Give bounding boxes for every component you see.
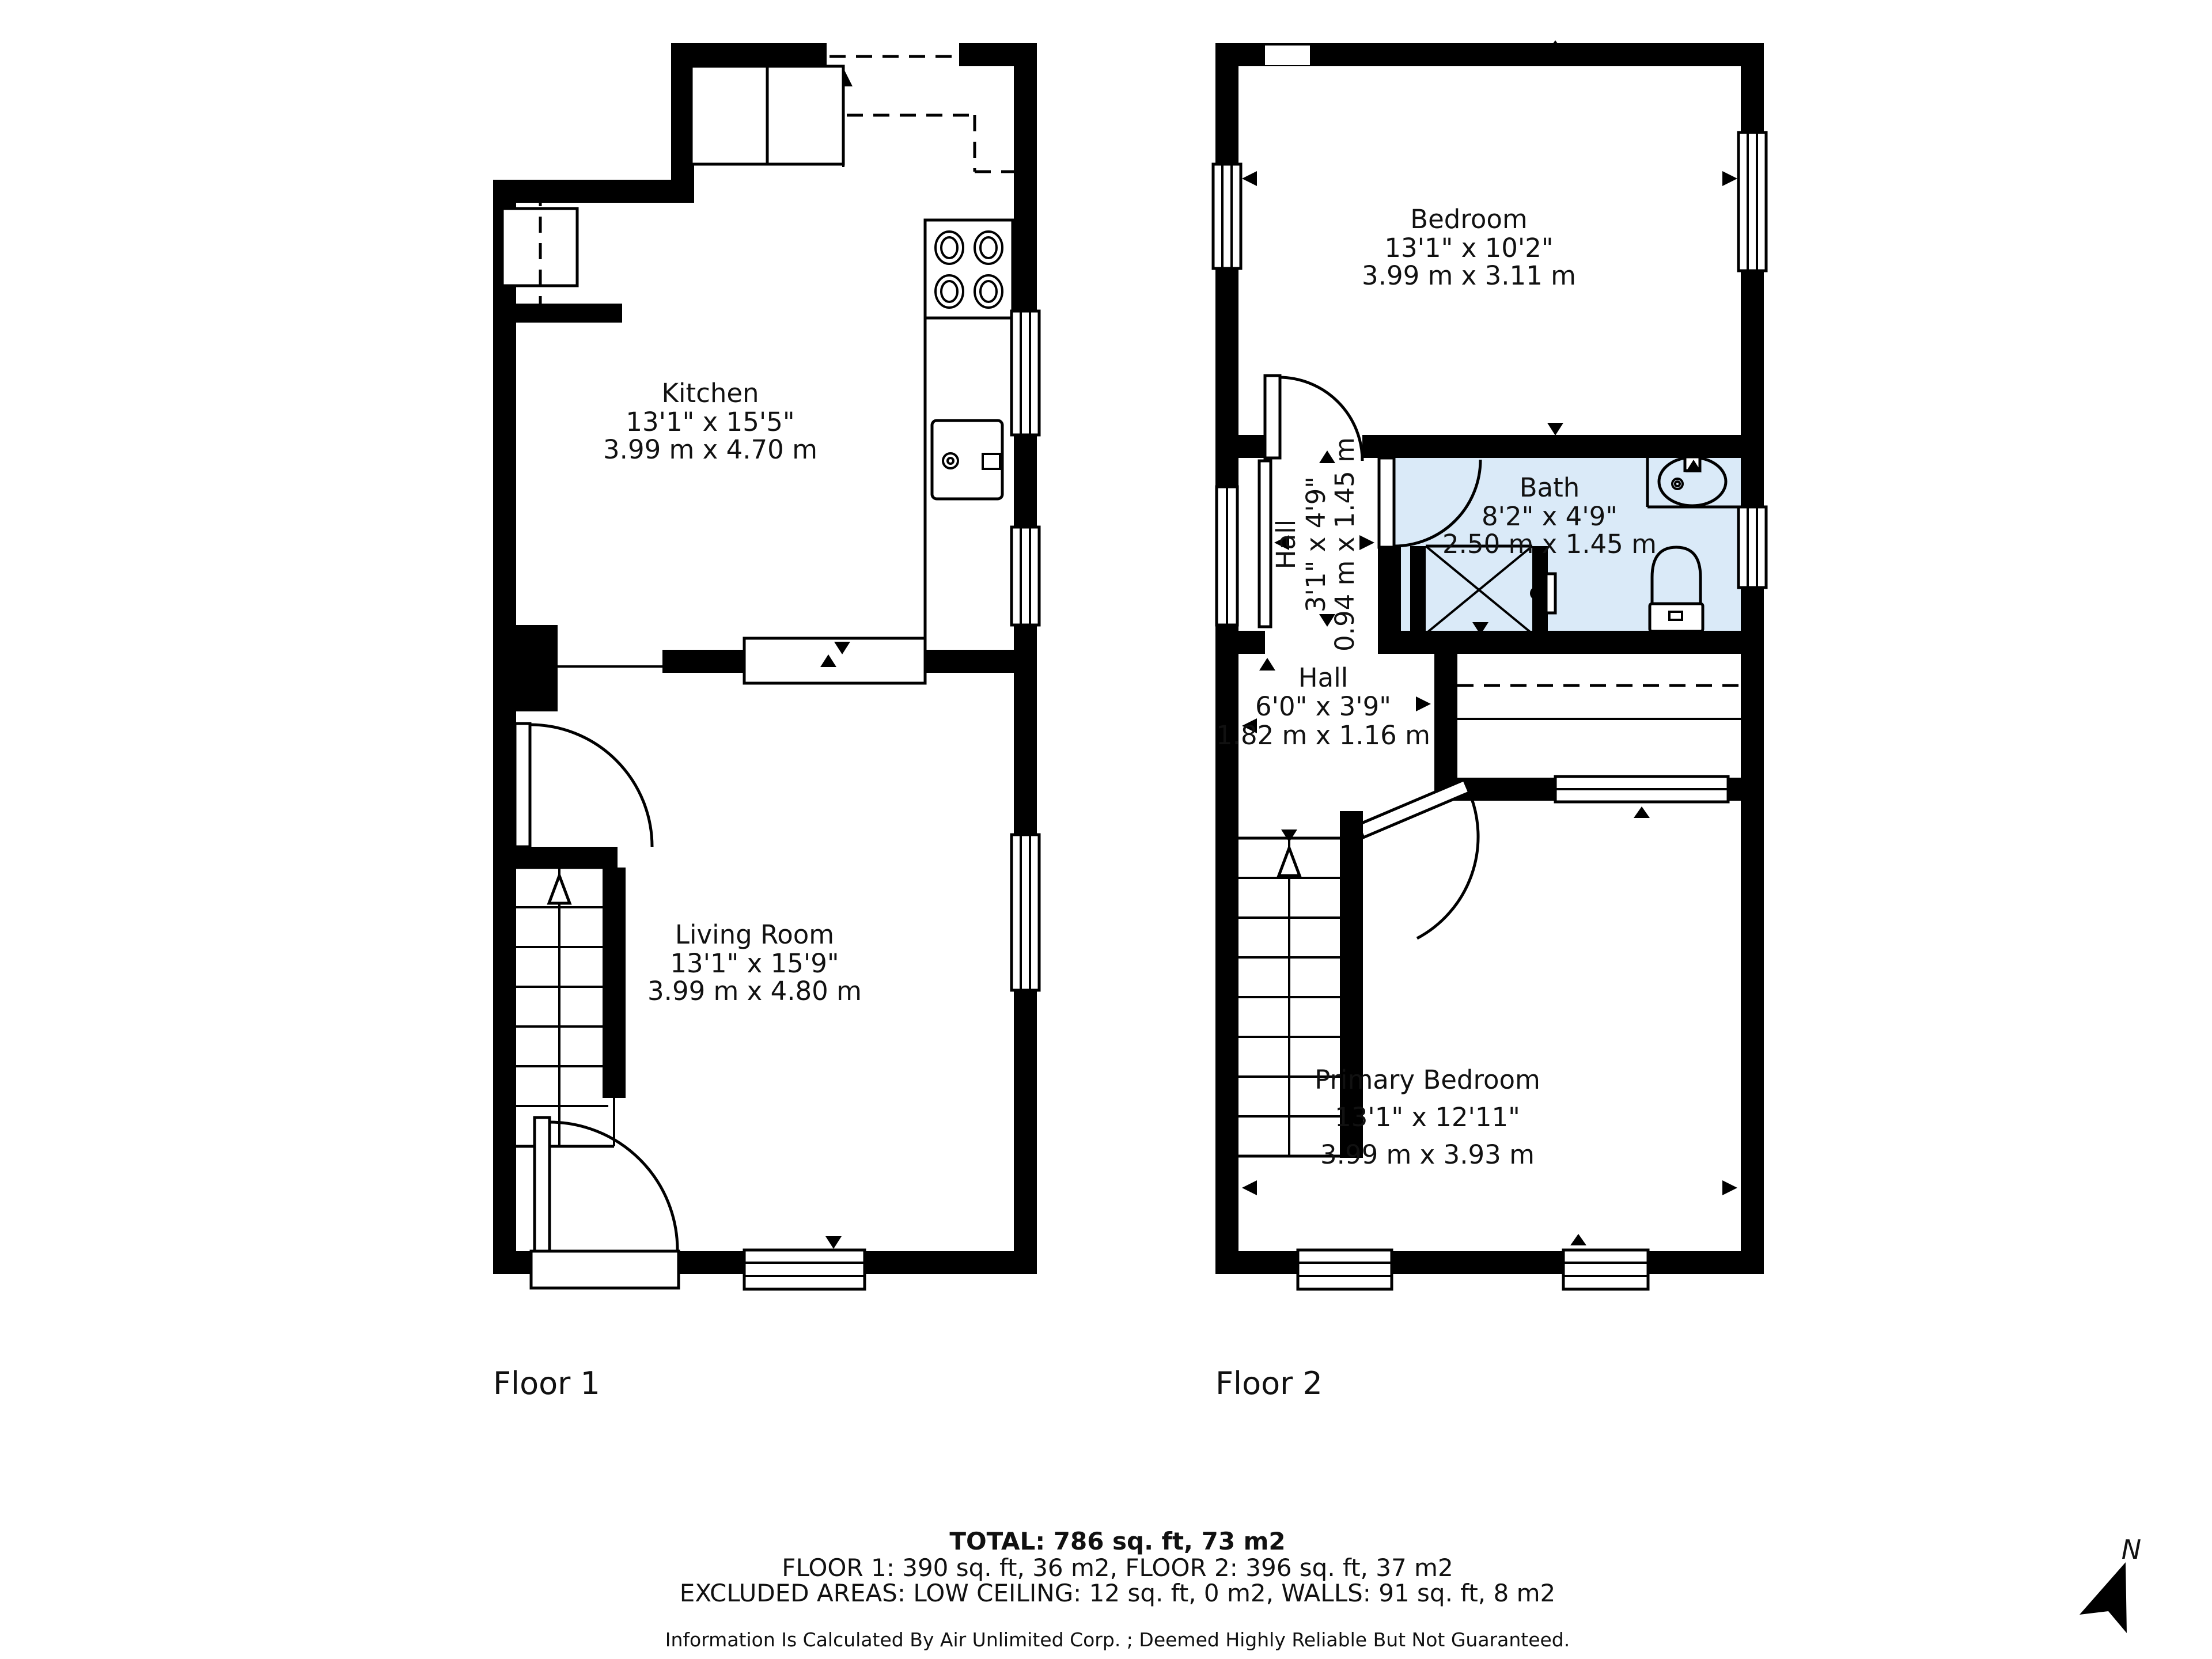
floor2-plan: Bedroom 13'1" x 10'2" 3.99 m x 3.11 m Ba… <box>1213 40 1766 1402</box>
floor1-plan: Kitchen 13'1" x 15'5" 3.99 m x 4.70 m Li… <box>493 43 1039 1402</box>
summary-excluded: EXCLUDED AREAS: LOW CEILING: 12 sq. ft, … <box>680 1579 1555 1607</box>
summary-total: TOTAL: 786 sq. ft, 73 m2 <box>949 1527 1285 1555</box>
kitchen-imperial: 13'1" x 15'5" <box>626 407 794 437</box>
summary-block: TOTAL: 786 sq. ft, 73 m2 FLOOR 1: 390 sq… <box>665 1527 1570 1651</box>
kitchen-window <box>1012 311 1039 435</box>
bath-window <box>1738 507 1766 588</box>
hall-name: Hall <box>1298 662 1348 693</box>
hall-small-label: Hall 3'1" x 4'9" 0.94 m x 1.45 m <box>1271 437 1360 652</box>
hall-recess <box>1217 461 1271 627</box>
living-room-label: Living Room 13'1" x 15'9" 3.99 m x 4.80 … <box>647 919 862 1006</box>
kitchen-metric: 3.99 m x 4.70 m <box>603 434 817 465</box>
bedroom-imperial: 13'1" x 10'2" <box>1384 233 1553 263</box>
living-room-door <box>515 724 652 847</box>
primary-bedroom-metric: 3.99 m x 3.93 m <box>1320 1139 1535 1170</box>
kitchen-counter <box>691 66 843 164</box>
kitchen-window-2 <box>1012 527 1039 625</box>
stair-wall-stub <box>493 847 618 868</box>
floor-plan-svg: Kitchen 13'1" x 15'5" 3.99 m x 4.70 m Li… <box>0 0 2212 1659</box>
stairs-icon <box>516 868 626 1146</box>
primary-bedroom-name: Primary Bedroom <box>1315 1065 1540 1095</box>
bedroom-name: Bedroom <box>1410 204 1528 234</box>
hall-bottom-stub <box>1215 631 1265 654</box>
primary-bottom-window-1 <box>1298 1250 1392 1289</box>
hall-small-name: Hall <box>1271 520 1301 569</box>
front-door <box>531 1118 679 1288</box>
living-room-imperial: 13'1" x 15'9" <box>670 948 839 979</box>
hall-imperial: 6'0" x 3'9" <box>1255 691 1391 722</box>
bath-name: Bath <box>1520 472 1580 503</box>
stove-icon <box>925 220 1013 318</box>
upper-cabinets-dashed <box>847 115 1014 172</box>
bedroom-left-window <box>1213 164 1241 268</box>
primary-bedroom-imperial: 13'1" x 12'11" <box>1335 1102 1520 1132</box>
hall-primary-door <box>1358 780 1478 938</box>
kitchen-living-divider <box>493 625 1014 711</box>
floorplan-page: Kitchen 13'1" x 15'5" 3.99 m x 4.70 m Li… <box>0 0 2212 1659</box>
hall-small-metric: 0.94 m x 1.45 m <box>1330 437 1360 652</box>
closet-area <box>1434 654 1741 818</box>
floor1-label: Floor 1 <box>493 1365 600 1402</box>
living-room-window <box>1012 835 1039 990</box>
north-label: N <box>2122 1534 2141 1565</box>
bath-metric: 2.50 m x 1.45 m <box>1442 529 1657 559</box>
pass-through-counter <box>744 638 925 683</box>
north-arrow-icon: N <box>2080 1534 2141 1633</box>
sink-icon <box>932 421 1002 499</box>
hall-label: Hall 6'0" x 3'9" 1.82 m x 1.16 m <box>1216 662 1430 751</box>
kitchen-name: Kitchen <box>661 378 759 408</box>
door-threshold <box>531 1251 679 1288</box>
primary-bedroom-label: Primary Bedroom 13'1" x 12'11" 3.99 m x … <box>1315 1065 1540 1170</box>
bath-imperial: 8'2" x 4'9" <box>1482 501 1618 532</box>
living-room-bottom-window <box>744 1250 865 1289</box>
hall-small-imperial: 3'1" x 4'9" <box>1301 476 1331 612</box>
summary-floors: FLOOR 1: 390 sq. ft, 36 m2, FLOOR 2: 396… <box>782 1554 1453 1582</box>
floor2-label: Floor 2 <box>1215 1365 1323 1402</box>
living-room-name: Living Room <box>675 919 834 950</box>
interior-wall-stub <box>493 304 622 323</box>
living-room-metric: 3.99 m x 4.80 m <box>647 976 862 1006</box>
bedroom-divider-wall <box>1215 435 1764 458</box>
primary-bottom-window-2 <box>1563 1250 1648 1289</box>
kitchen-label: Kitchen 13'1" x 15'5" 3.99 m x 4.70 m <box>603 378 817 465</box>
bedroom-right-window <box>1738 132 1766 271</box>
entry-opening <box>829 56 956 167</box>
bedroom-label: Bedroom 13'1" x 10'2" 3.99 m x 3.11 m <box>1362 204 1576 291</box>
bedroom-metric: 3.99 m x 3.11 m <box>1362 260 1576 291</box>
bath-bottom-wall <box>1378 631 1764 654</box>
summary-disclaimer: Information Is Calculated By Air Unlimit… <box>665 1628 1570 1651</box>
hall-metric: 1.82 m x 1.16 m <box>1216 720 1430 751</box>
